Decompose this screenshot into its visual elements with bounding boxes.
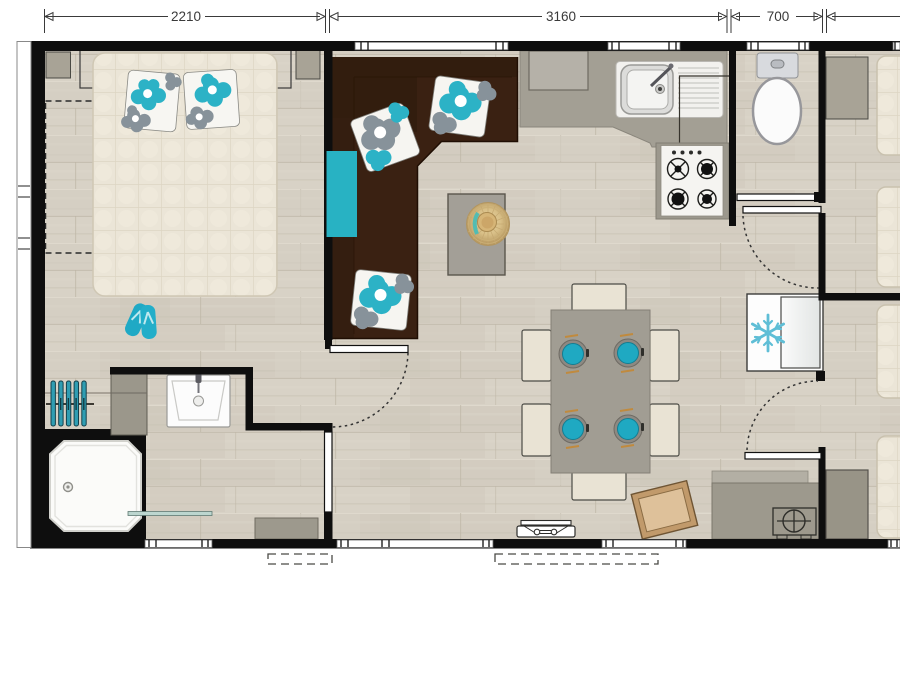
svg-text:2210: 2210 bbox=[171, 9, 201, 24]
svg-text:3160: 3160 bbox=[546, 9, 576, 24]
svg-text:700: 700 bbox=[767, 9, 790, 24]
